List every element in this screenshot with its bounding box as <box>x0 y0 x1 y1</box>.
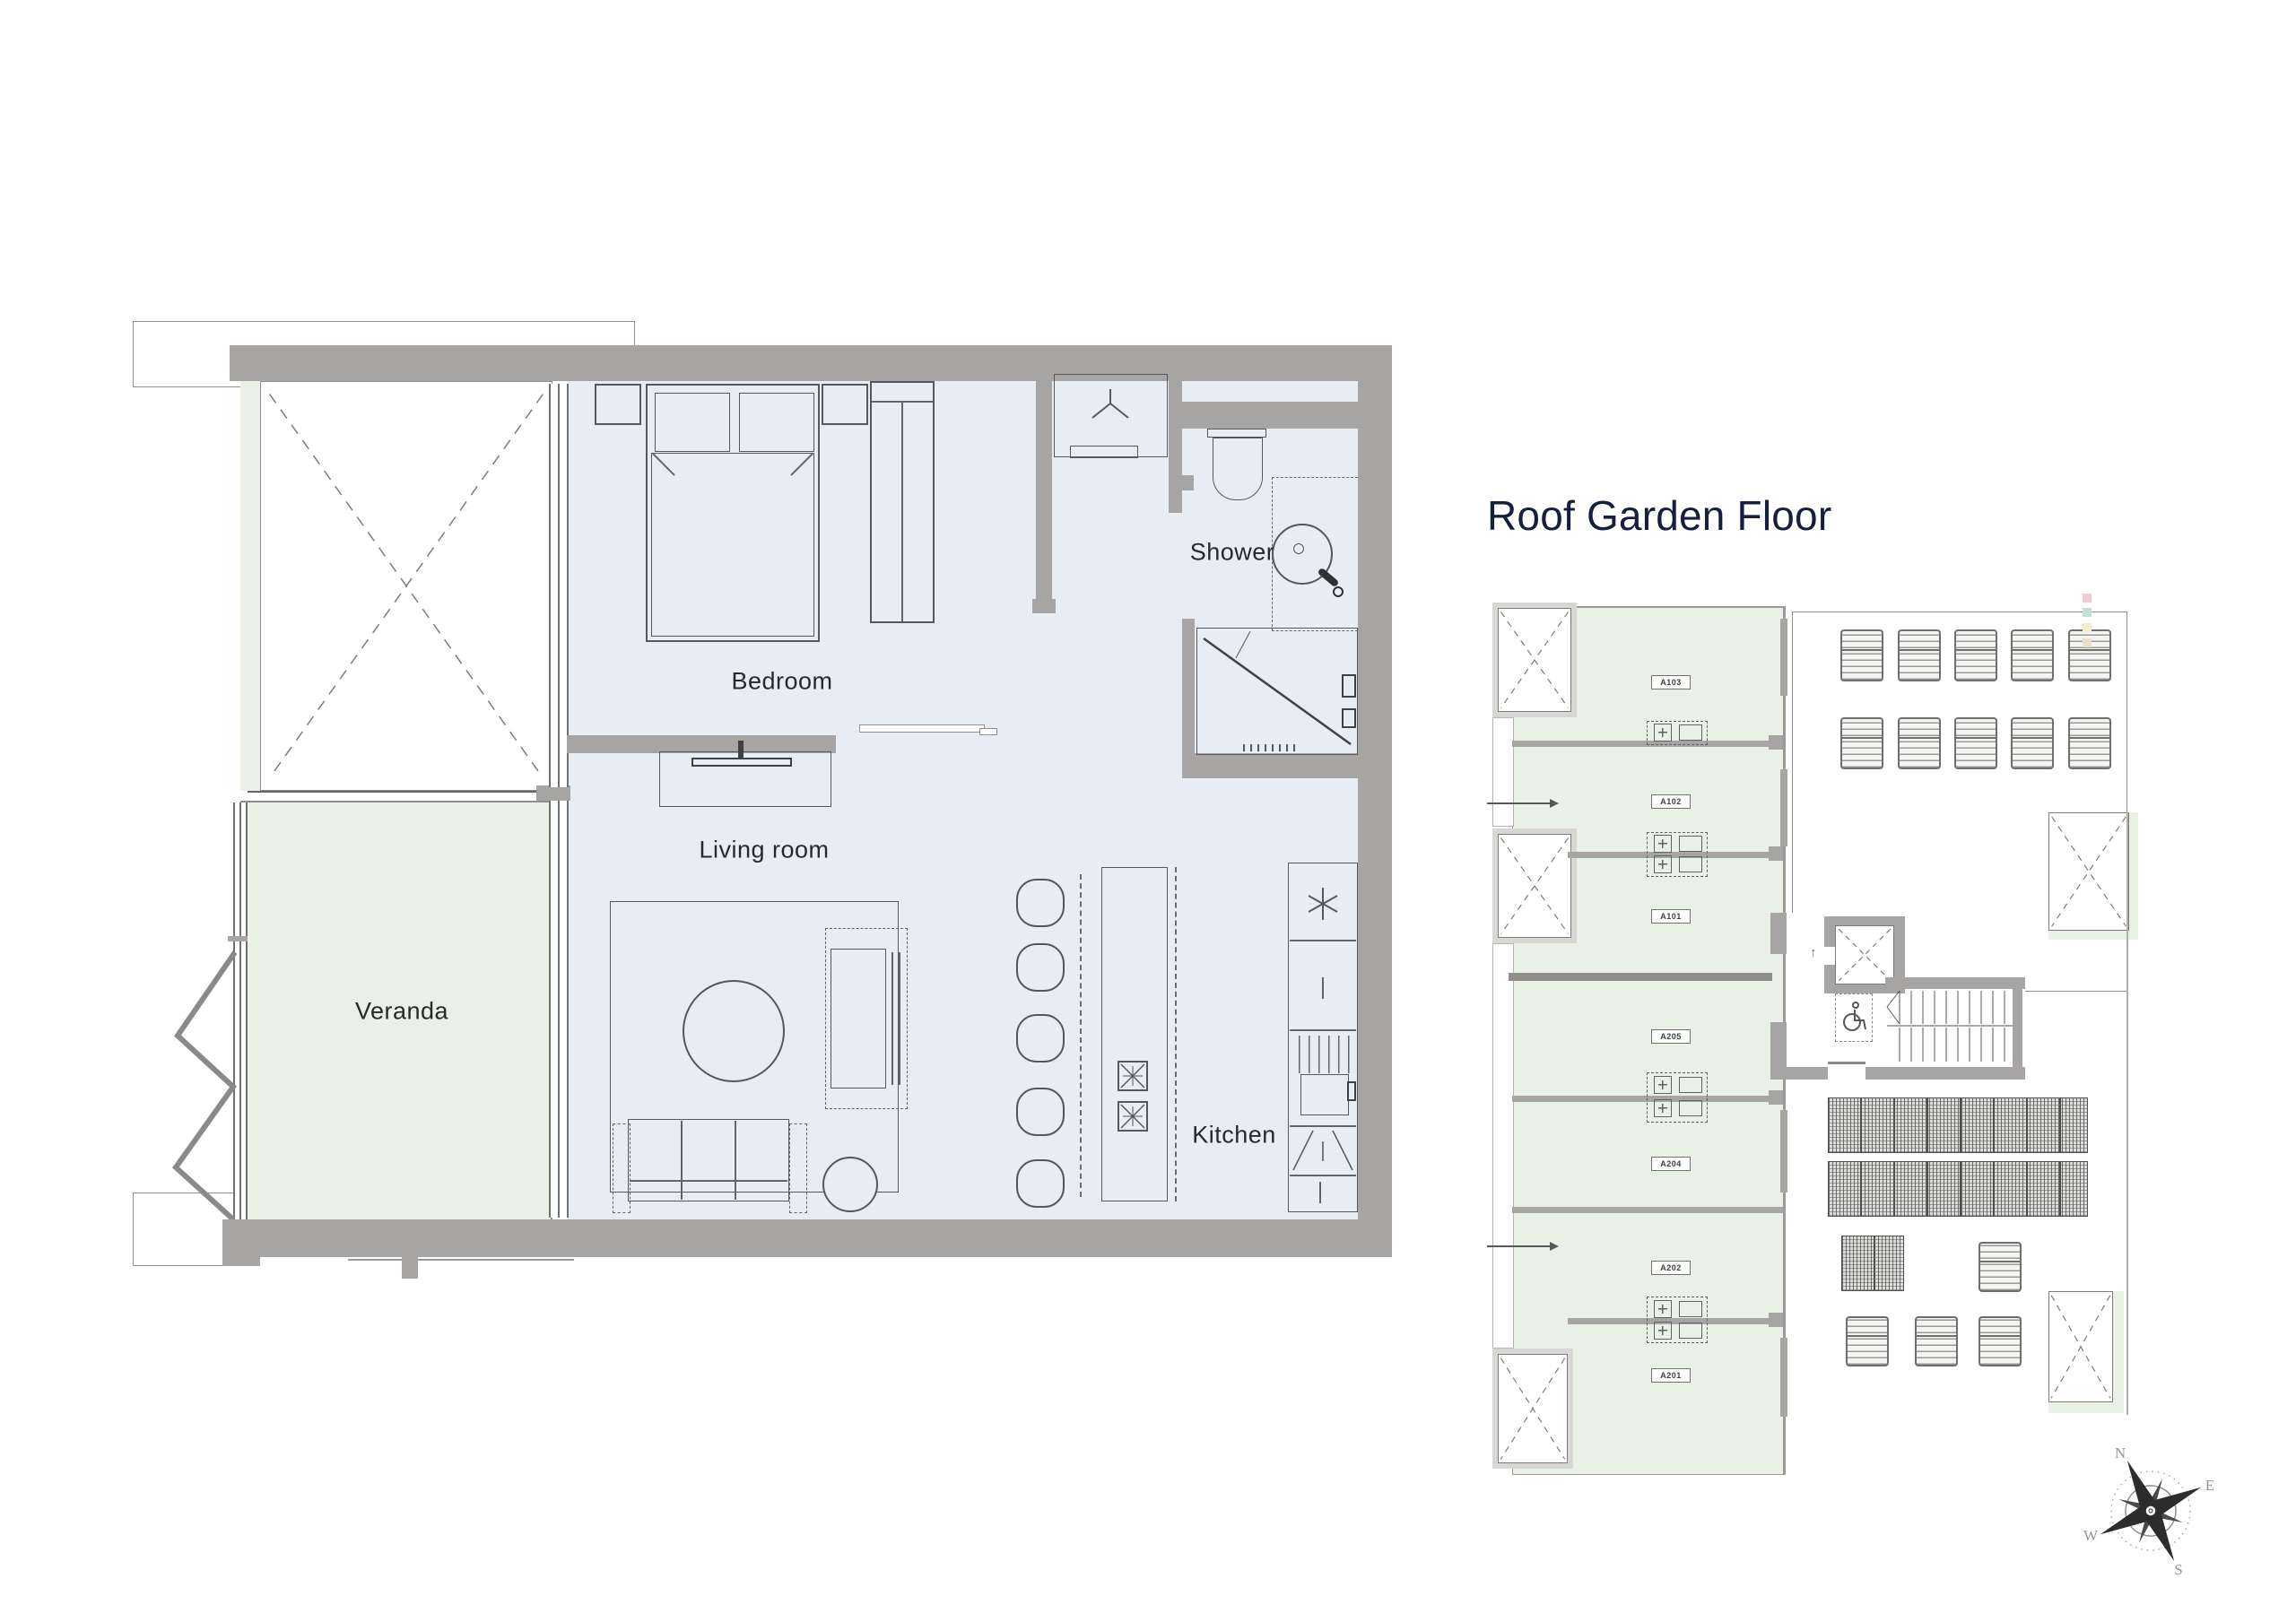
hob-icon <box>1118 1101 1148 1132</box>
core-bottom-wall <box>1787 1067 2025 1080</box>
wardrobe-divider <box>901 403 903 621</box>
counter-divider <box>1290 1175 1356 1176</box>
ac-unit <box>1898 629 1941 681</box>
marker-dot <box>2083 638 2092 647</box>
terrace-partition <box>1509 973 1772 981</box>
compass-label-south: S <box>2174 1561 2182 1578</box>
ac-outdoor-unit <box>1654 1300 1672 1318</box>
wall-segment <box>402 1257 418 1279</box>
unit-label: A101 <box>1651 909 1691 924</box>
staircase <box>1885 977 2025 1079</box>
sofa-arm <box>789 1123 807 1213</box>
ac-outdoor-unit <box>1654 1099 1672 1117</box>
sink-bowl <box>1300 1074 1349 1115</box>
room-label-veranda: Veranda <box>355 998 448 1026</box>
bedroom-window <box>549 384 569 787</box>
skylight-green-edge <box>2048 1402 2124 1413</box>
side-table <box>822 1157 878 1212</box>
folding-shutter-icon <box>170 897 246 1227</box>
sofa-seam <box>681 1121 683 1200</box>
coffee-table <box>683 980 785 1082</box>
bar-stool <box>1016 879 1065 927</box>
section-marker-arrow <box>1550 1242 1559 1251</box>
equipment-box <box>1679 1077 1702 1093</box>
sliding-door-panel <box>859 724 985 733</box>
faucet <box>1347 1081 1356 1101</box>
section-marker <box>1487 802 1553 804</box>
skylight-x-icon <box>261 382 552 790</box>
roof-edge-notch <box>1492 717 1514 827</box>
divider-line <box>248 791 549 793</box>
bar-stool <box>1016 1088 1065 1136</box>
unit-label: A205 <box>1651 1029 1691 1044</box>
planter-strip <box>240 381 260 791</box>
unit-label: A102 <box>1651 794 1691 809</box>
ac-outdoor-unit <box>1654 724 1672 742</box>
shower-door <box>1196 628 1358 755</box>
roof-edge-notch <box>1492 943 1514 1349</box>
wall-segment <box>222 1219 260 1266</box>
floor-plan-main: Bedroom Shower Living room Veranda Kitch… <box>0 0 1453 1345</box>
ac-unit <box>1979 1316 2022 1366</box>
ac-unit <box>1846 1316 1889 1366</box>
compass-rose-icon: N E S W <box>2077 1435 2230 1596</box>
skylight-x-icon <box>2049 1292 2112 1401</box>
skylight-x-icon <box>1498 1354 1568 1463</box>
solar-panel-array <box>1828 1161 2088 1217</box>
unit-label: A204 <box>1651 1157 1691 1171</box>
compass-label-east: E <box>2205 1477 2214 1494</box>
dishwasher-icon <box>1290 1125 1356 1175</box>
marker-dot <box>2083 608 2092 617</box>
fridge-star-icon <box>1305 886 1341 922</box>
floorplan-page: Bedroom Shower Living room Veranda Kitch… <box>0 0 2296 1622</box>
shower-drain <box>1243 744 1300 751</box>
ac-outdoor-unit <box>1654 835 1672 853</box>
section-marker-arrow <box>1550 799 1559 808</box>
ac-unit <box>1840 717 1883 769</box>
wheelchair-icon <box>1840 1001 1867 1035</box>
skylight-green-edge <box>2048 931 2138 940</box>
ac-unit <box>2011 629 2054 681</box>
nightstand <box>822 384 868 425</box>
sofa-seam <box>735 1121 736 1200</box>
equipment-box <box>1679 724 1702 741</box>
bar-stool <box>1016 943 1065 992</box>
nightstand <box>595 384 641 425</box>
wall-segment <box>536 785 570 801</box>
skylight-x-icon <box>1836 926 1893 984</box>
tv-screen <box>691 758 792 767</box>
solar-panel-block <box>1841 1236 1904 1291</box>
compass-label-north: N <box>2115 1444 2126 1462</box>
room-label-living-room: Living room <box>699 837 829 864</box>
armchair-back-line <box>899 952 900 1085</box>
marker-dot <box>2083 594 2092 603</box>
basin-drain <box>1293 543 1304 554</box>
cabinet-handle <box>1322 977 1324 999</box>
wall-segment <box>1770 913 1787 954</box>
unit-label: A201 <box>1651 1368 1691 1383</box>
roof-skylight <box>1492 1349 1573 1469</box>
ac-unit <box>1840 629 1883 681</box>
roof-skylight <box>2048 1291 2113 1402</box>
equipment-box <box>1679 1323 1702 1339</box>
bar-stool <box>1016 1014 1065 1063</box>
tap-handle <box>1333 586 1344 597</box>
overhead-cabinet-line <box>1175 867 1177 1201</box>
exterior-line <box>348 1259 574 1261</box>
wall-shower-niche <box>1178 402 1358 429</box>
wall-segment <box>1770 1022 1787 1080</box>
toilet-tank <box>1207 429 1266 438</box>
counter-divider <box>1290 1029 1356 1031</box>
ac-outdoor-unit <box>1654 1322 1672 1340</box>
toilet <box>1213 438 1263 500</box>
counter-divider <box>1290 940 1356 941</box>
ac-unit <box>2068 629 2111 681</box>
ac-unit <box>1979 1242 2022 1292</box>
island-overhang <box>1080 874 1082 1197</box>
kitchen-island <box>1101 867 1168 1201</box>
equipment-box <box>1679 856 1702 872</box>
shower-head <box>1342 674 1356 698</box>
roof-boundary-line <box>2126 812 2128 1415</box>
wall-segment <box>1780 769 1787 846</box>
wall-bottom <box>230 1219 1392 1257</box>
compass-label-west: W <box>2083 1527 2099 1544</box>
ac-unit <box>2068 717 2111 769</box>
skylight-x-icon <box>1498 834 1571 938</box>
skylight-green-edge <box>2129 812 2138 940</box>
armchair-seat <box>831 949 886 1089</box>
sink-drainer <box>1299 1036 1351 1073</box>
sofa-back-line <box>630 1180 787 1182</box>
skylight-void <box>260 381 552 791</box>
armchair-back-line <box>891 952 893 1085</box>
wall-right <box>1358 381 1392 1257</box>
veranda-window <box>549 801 569 1218</box>
wall-segment <box>1780 1338 1787 1417</box>
door-leaf <box>1828 1062 1865 1064</box>
equipment-box <box>1679 1301 1702 1317</box>
equipment-box <box>1679 836 1702 852</box>
hob-icon <box>1118 1061 1148 1091</box>
roof-skylight <box>1492 603 1577 717</box>
skylight-x-icon <box>2049 813 2128 930</box>
roof-skylight <box>1492 828 1577 943</box>
skylight-x-icon <box>1498 608 1571 712</box>
elevator-door-gap <box>1824 947 1835 965</box>
wall-top <box>230 345 1392 381</box>
pillow <box>739 393 814 452</box>
skylight-green-edge <box>2113 1291 2124 1413</box>
blanket <box>651 453 814 637</box>
unit-label: A103 <box>1651 675 1691 690</box>
marker-dot <box>2083 623 2092 632</box>
ac-unit <box>1915 1316 1958 1366</box>
elevator-shaft <box>1835 925 1894 984</box>
wall-shower-bottom <box>1182 753 1358 778</box>
wall-segment <box>1780 1110 1787 1193</box>
wall-bedroom-living <box>567 735 836 753</box>
wall-segment <box>1780 619 1787 696</box>
roof-plan-title: Roof Garden Floor <box>1487 491 1831 540</box>
room-label-bedroom: Bedroom <box>731 668 832 696</box>
core-door-gap <box>1828 1067 1865 1080</box>
terrace-partition <box>1512 1207 1785 1213</box>
room-label-shower: Shower <box>1190 539 1275 567</box>
unit-label: A202 <box>1651 1261 1691 1275</box>
solar-panel-array <box>1828 1097 2088 1153</box>
wall-segment <box>1182 475 1194 490</box>
coat-hook-icon <box>1089 389 1132 425</box>
shower-valve <box>1342 708 1356 728</box>
sofa <box>628 1119 789 1201</box>
roof-skylight <box>2048 812 2129 931</box>
section-marker <box>1487 1245 1553 1247</box>
ac-unit <box>1898 717 1941 769</box>
wall-segment <box>1032 599 1056 613</box>
ac-unit <box>1954 629 1997 681</box>
wall-hall-partition <box>1036 381 1052 612</box>
ac-unit <box>1954 717 1997 769</box>
bar-stool <box>1016 1159 1065 1208</box>
ac-unit <box>2011 717 2054 769</box>
cabinet-handle <box>1319 1182 1321 1203</box>
sliding-door-panel <box>979 728 997 735</box>
equipment-box <box>1679 1100 1702 1116</box>
ac-outdoor-unit <box>1654 1076 1672 1094</box>
elevator-up-arrow: ↑ <box>1810 945 1817 960</box>
closet-shelf <box>1070 446 1138 458</box>
tv-stand <box>738 741 744 759</box>
room-label-kitchen: Kitchen <box>1192 1122 1276 1149</box>
ac-outdoor-unit <box>1654 855 1672 873</box>
pillow <box>655 393 730 452</box>
